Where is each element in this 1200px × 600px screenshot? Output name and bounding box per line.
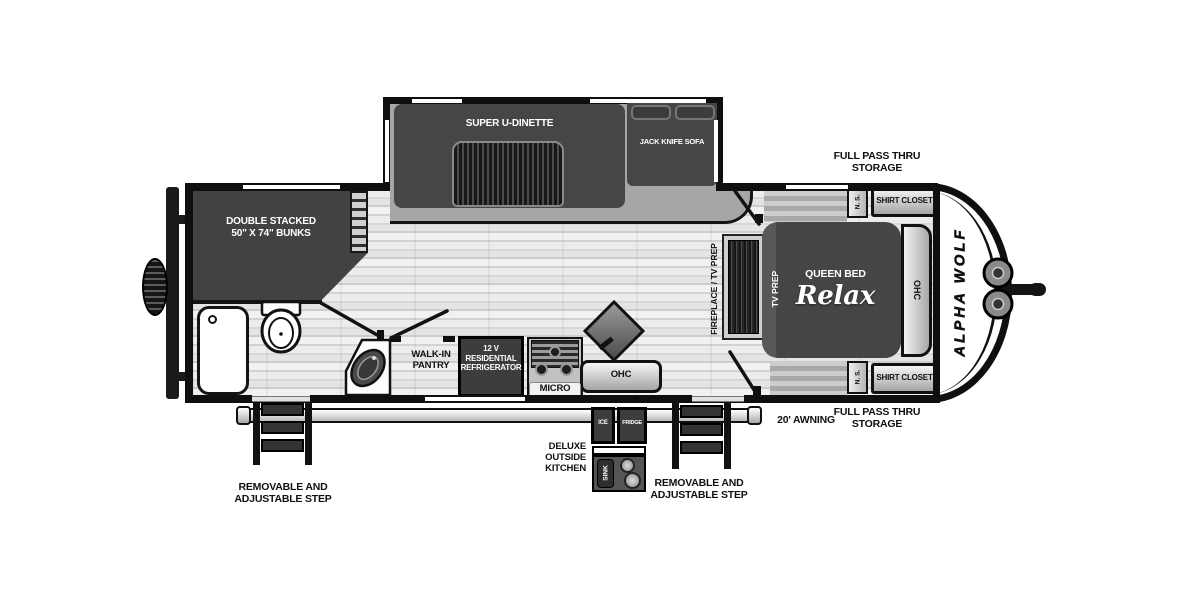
shirt-closet-bottom-text: SHIRT CLOSET <box>876 373 932 382</box>
bed-script-text: Relax <box>796 281 875 311</box>
hitch-assembly <box>984 259 1046 318</box>
step-right-label: REMOVABLE AND ADJUSTABLE STEP <box>649 477 749 501</box>
step-left-label: REMOVABLE AND ADJUSTABLE STEP <box>233 481 333 505</box>
bed-ohc-label-text: OHC <box>912 280 922 300</box>
nightstand-top-label: N. S. <box>855 195 862 209</box>
bed-ohc-label: OHC <box>912 280 922 300</box>
awning-label: 20' AWNING <box>766 414 846 426</box>
fireplace-label: FIREPLACE / TV PREP <box>709 243 719 335</box>
outside-ice-text: ICE <box>598 420 607 426</box>
awning-label-text: 20' AWNING <box>777 414 835 426</box>
dinette-label: SUPER U-DINETTE <box>394 118 625 130</box>
bunk-label-line1: DOUBLE STACKED <box>196 216 346 228</box>
kitchen-ohc-label-text: OHC <box>611 369 632 380</box>
bunk-label: DOUBLE STACKED 50" X 74" BUNKS <box>196 216 346 239</box>
queen-bed-label-text: QUEEN BED <box>805 268 866 280</box>
refrigerator-label-line1: 12 V <box>458 344 524 354</box>
pantry-label: WALK-IN PANTRY <box>401 350 461 372</box>
sofa-label-text: JACK KNIFE SOFA <box>640 137 705 146</box>
step-right-line2: ADJUSTABLE STEP <box>649 489 749 501</box>
kitchen-ohc-label: OHC <box>580 370 662 381</box>
queen-bed-label: QUEEN BED <box>770 268 901 280</box>
shirt-closet-top-label: SHIRT CLOSET <box>871 196 938 205</box>
linework-overlay <box>0 0 1200 600</box>
shirt-closet-top-text: SHIRT CLOSET <box>876 196 932 205</box>
pass-thru-top-line1: FULL PASS THRU <box>827 150 927 162</box>
nightstand-top-text: N. S. <box>855 195 862 209</box>
toilet <box>262 302 300 352</box>
outside-sink-text: SINK <box>603 465 610 481</box>
refrigerator-label: 12 V RESIDENTIAL REFRIGERATOR <box>458 344 524 373</box>
fireplace-label-text: FIREPLACE / TV PREP <box>709 243 719 335</box>
bed-script-label: Relax <box>770 282 901 312</box>
outside-sink-label: SINK <box>603 465 610 481</box>
micro-label-text: MICRO <box>540 383 571 394</box>
outside-ice-label: ICE <box>591 420 615 427</box>
bath-vanity-sink <box>345 340 392 395</box>
outside-kitchen-line3: KITCHEN <box>522 464 586 475</box>
nightstand-bottom-label: N. S. <box>855 370 862 384</box>
micro-label: MICRO <box>529 384 581 395</box>
step-left-line2: ADJUSTABLE STEP <box>233 493 333 505</box>
refrigerator-label-line3: REFRIGERATOR <box>458 363 524 373</box>
bunk-label-line2: 50" X 74" BUNKS <box>196 228 346 240</box>
pantry-label-line2: PANTRY <box>401 361 461 372</box>
sofa-label: JACK KNIFE SOFA <box>625 138 719 147</box>
floorplan-diagram: SUPER U-DINETTE JACK KNIFE SOFA DOUBLE S… <box>0 0 1200 600</box>
step-right-line1: REMOVABLE AND <box>649 477 749 489</box>
brand-logo-text: ALPHA WOLF <box>952 227 969 356</box>
pass-thru-top-line2: STORAGE <box>827 162 927 174</box>
step-left-line1: REMOVABLE AND <box>233 481 333 493</box>
outside-fridge-label: FRIDGE <box>617 420 647 426</box>
dinette-label-text: SUPER U-DINETTE <box>466 118 554 129</box>
nightstand-bottom-text: N. S. <box>855 370 862 384</box>
shirt-closet-bottom-label: SHIRT CLOSET <box>871 373 938 382</box>
brand-logo: ALPHA WOLF <box>952 227 969 356</box>
pass-thru-top-label: FULL PASS THRU STORAGE <box>827 150 927 174</box>
outside-kitchen-label: DELUXE OUTSIDE KITCHEN <box>522 442 586 475</box>
outside-fridge-text: FRIDGE <box>622 420 642 426</box>
refrigerator-label-line2: RESIDENTIAL <box>458 354 524 364</box>
